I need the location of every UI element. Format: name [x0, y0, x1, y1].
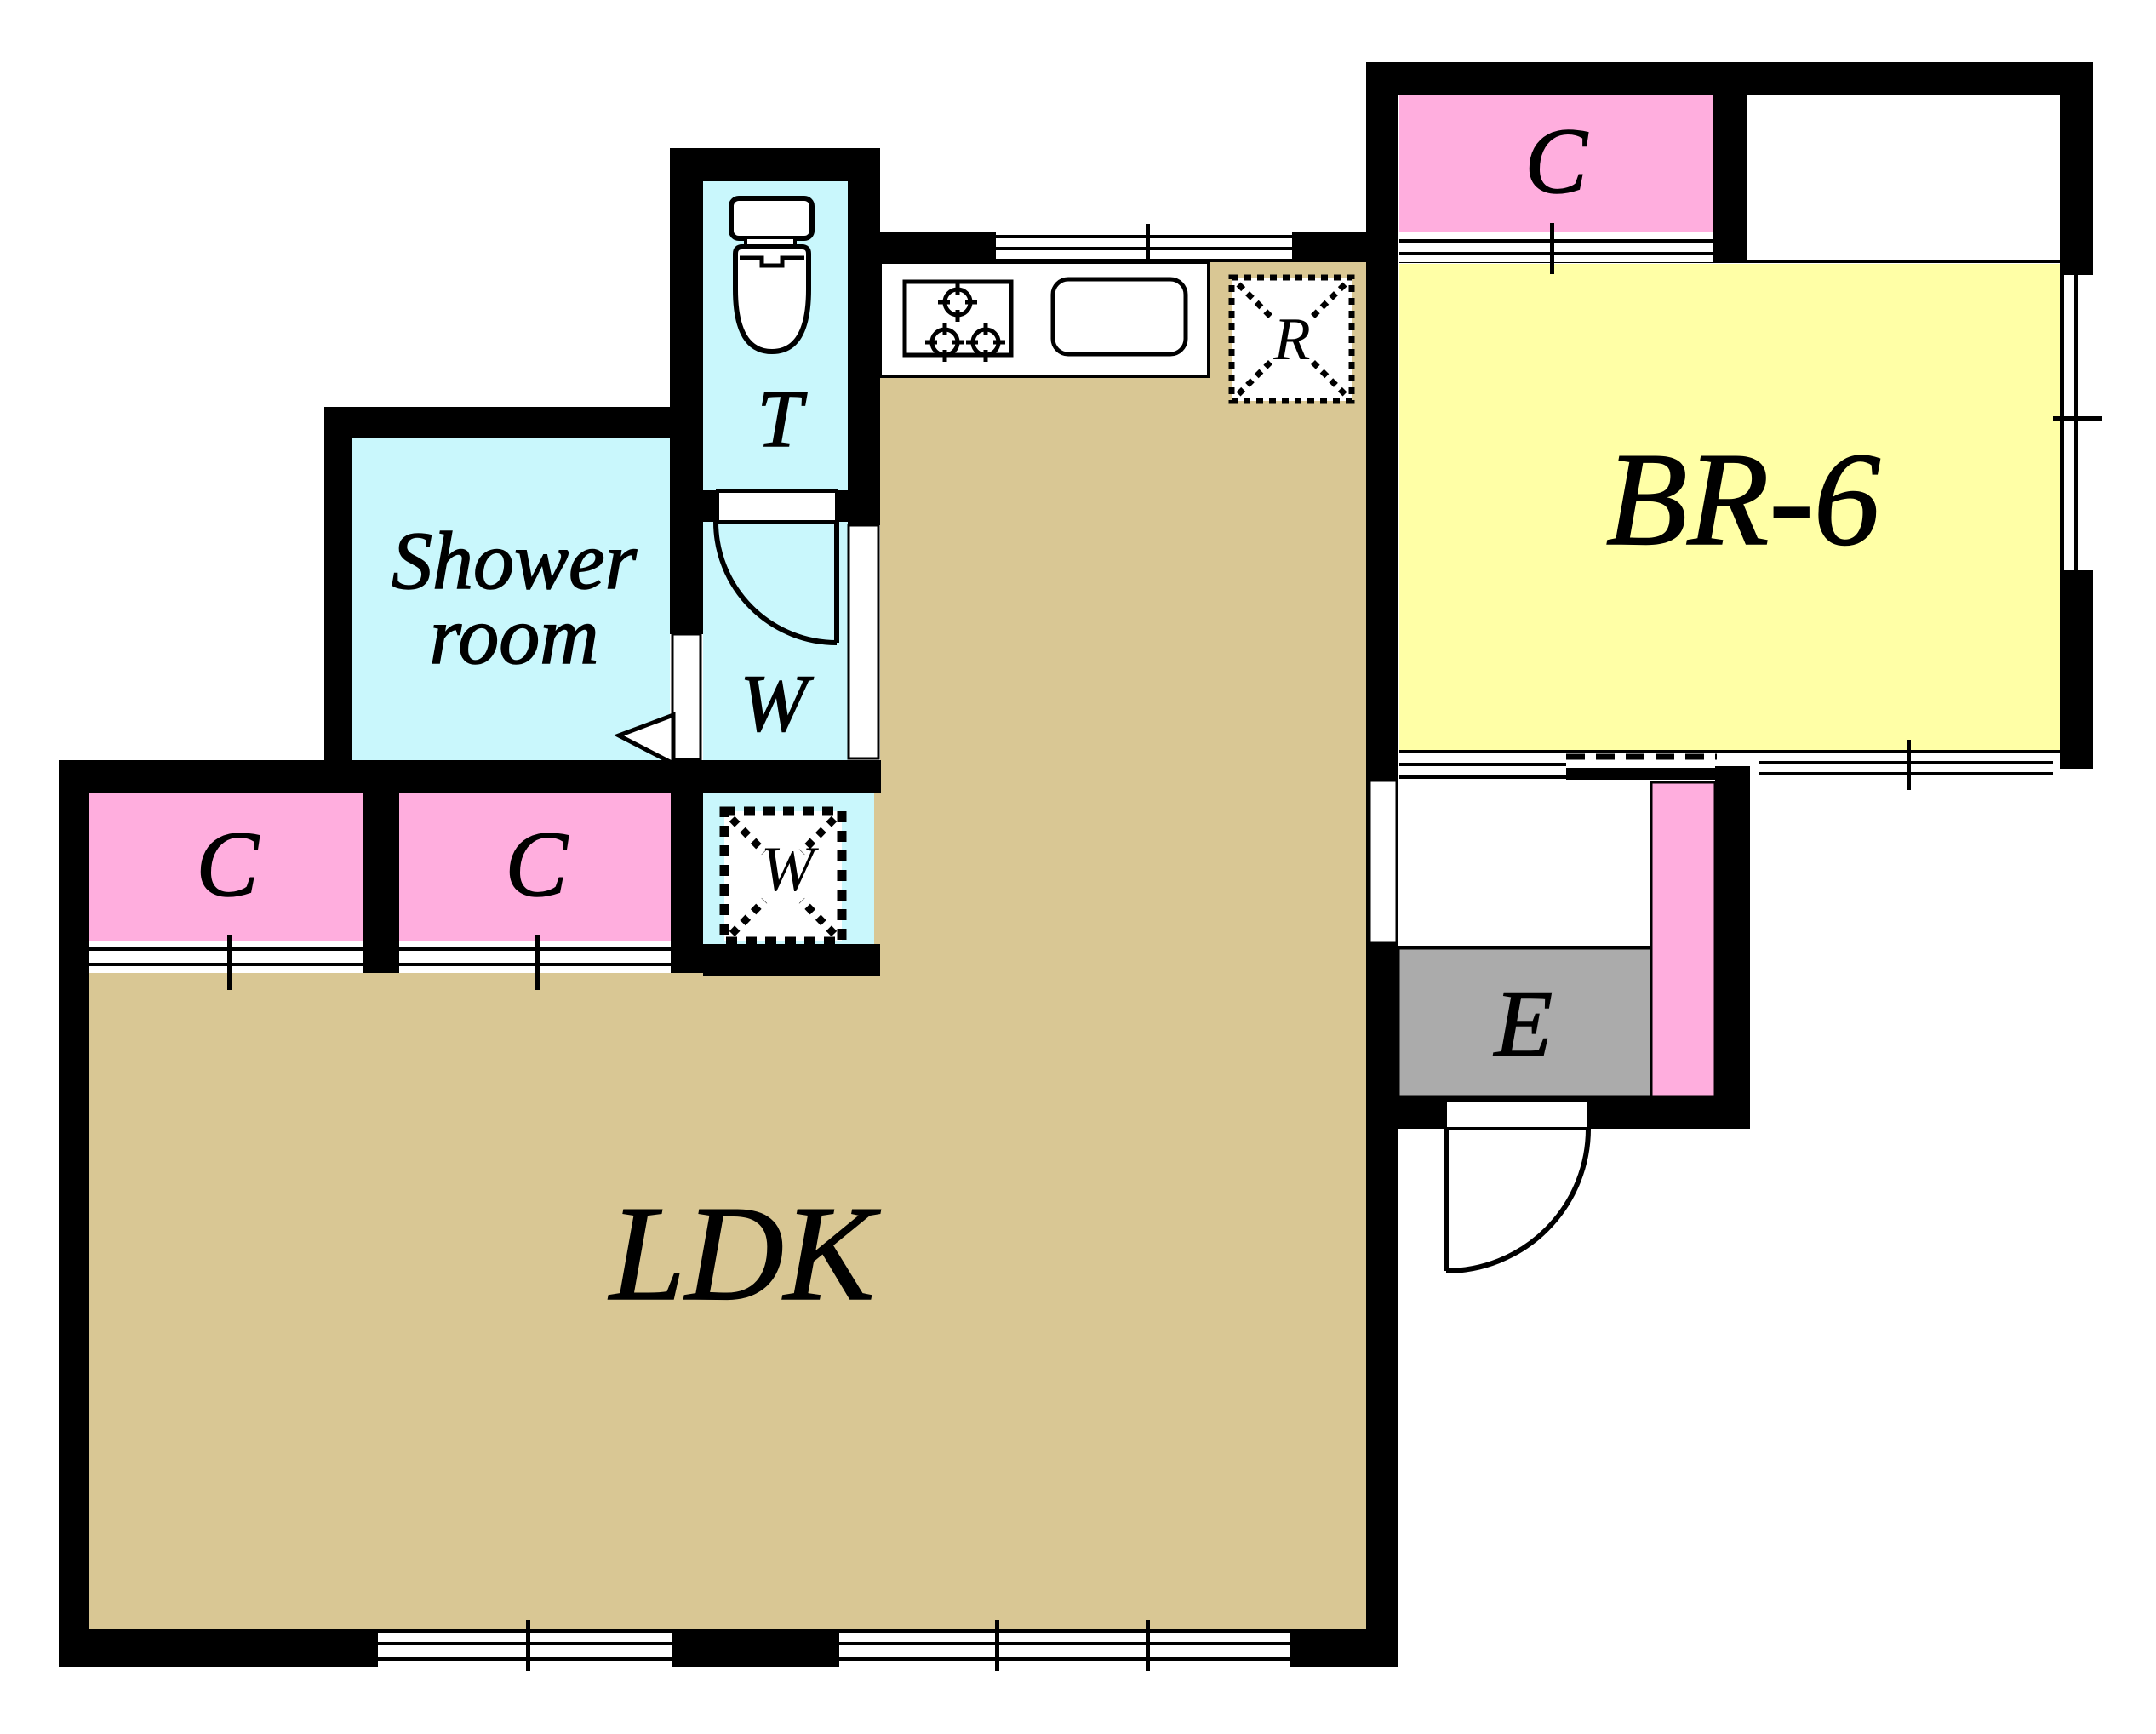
svg-text:E: E [1493, 971, 1553, 1077]
svg-text:LDK: LDK [608, 1177, 881, 1329]
svg-text:W: W [761, 834, 820, 905]
svg-text:room: room [429, 590, 598, 681]
svg-text:C: C [196, 812, 260, 916]
svg-text:W: W [740, 658, 814, 748]
svg-text:C: C [1524, 109, 1588, 213]
svg-text:BR-6: BR-6 [1606, 425, 1881, 573]
svg-text:T: T [758, 374, 808, 464]
svg-text:R: R [1272, 306, 1310, 373]
svg-text:C: C [505, 812, 569, 916]
